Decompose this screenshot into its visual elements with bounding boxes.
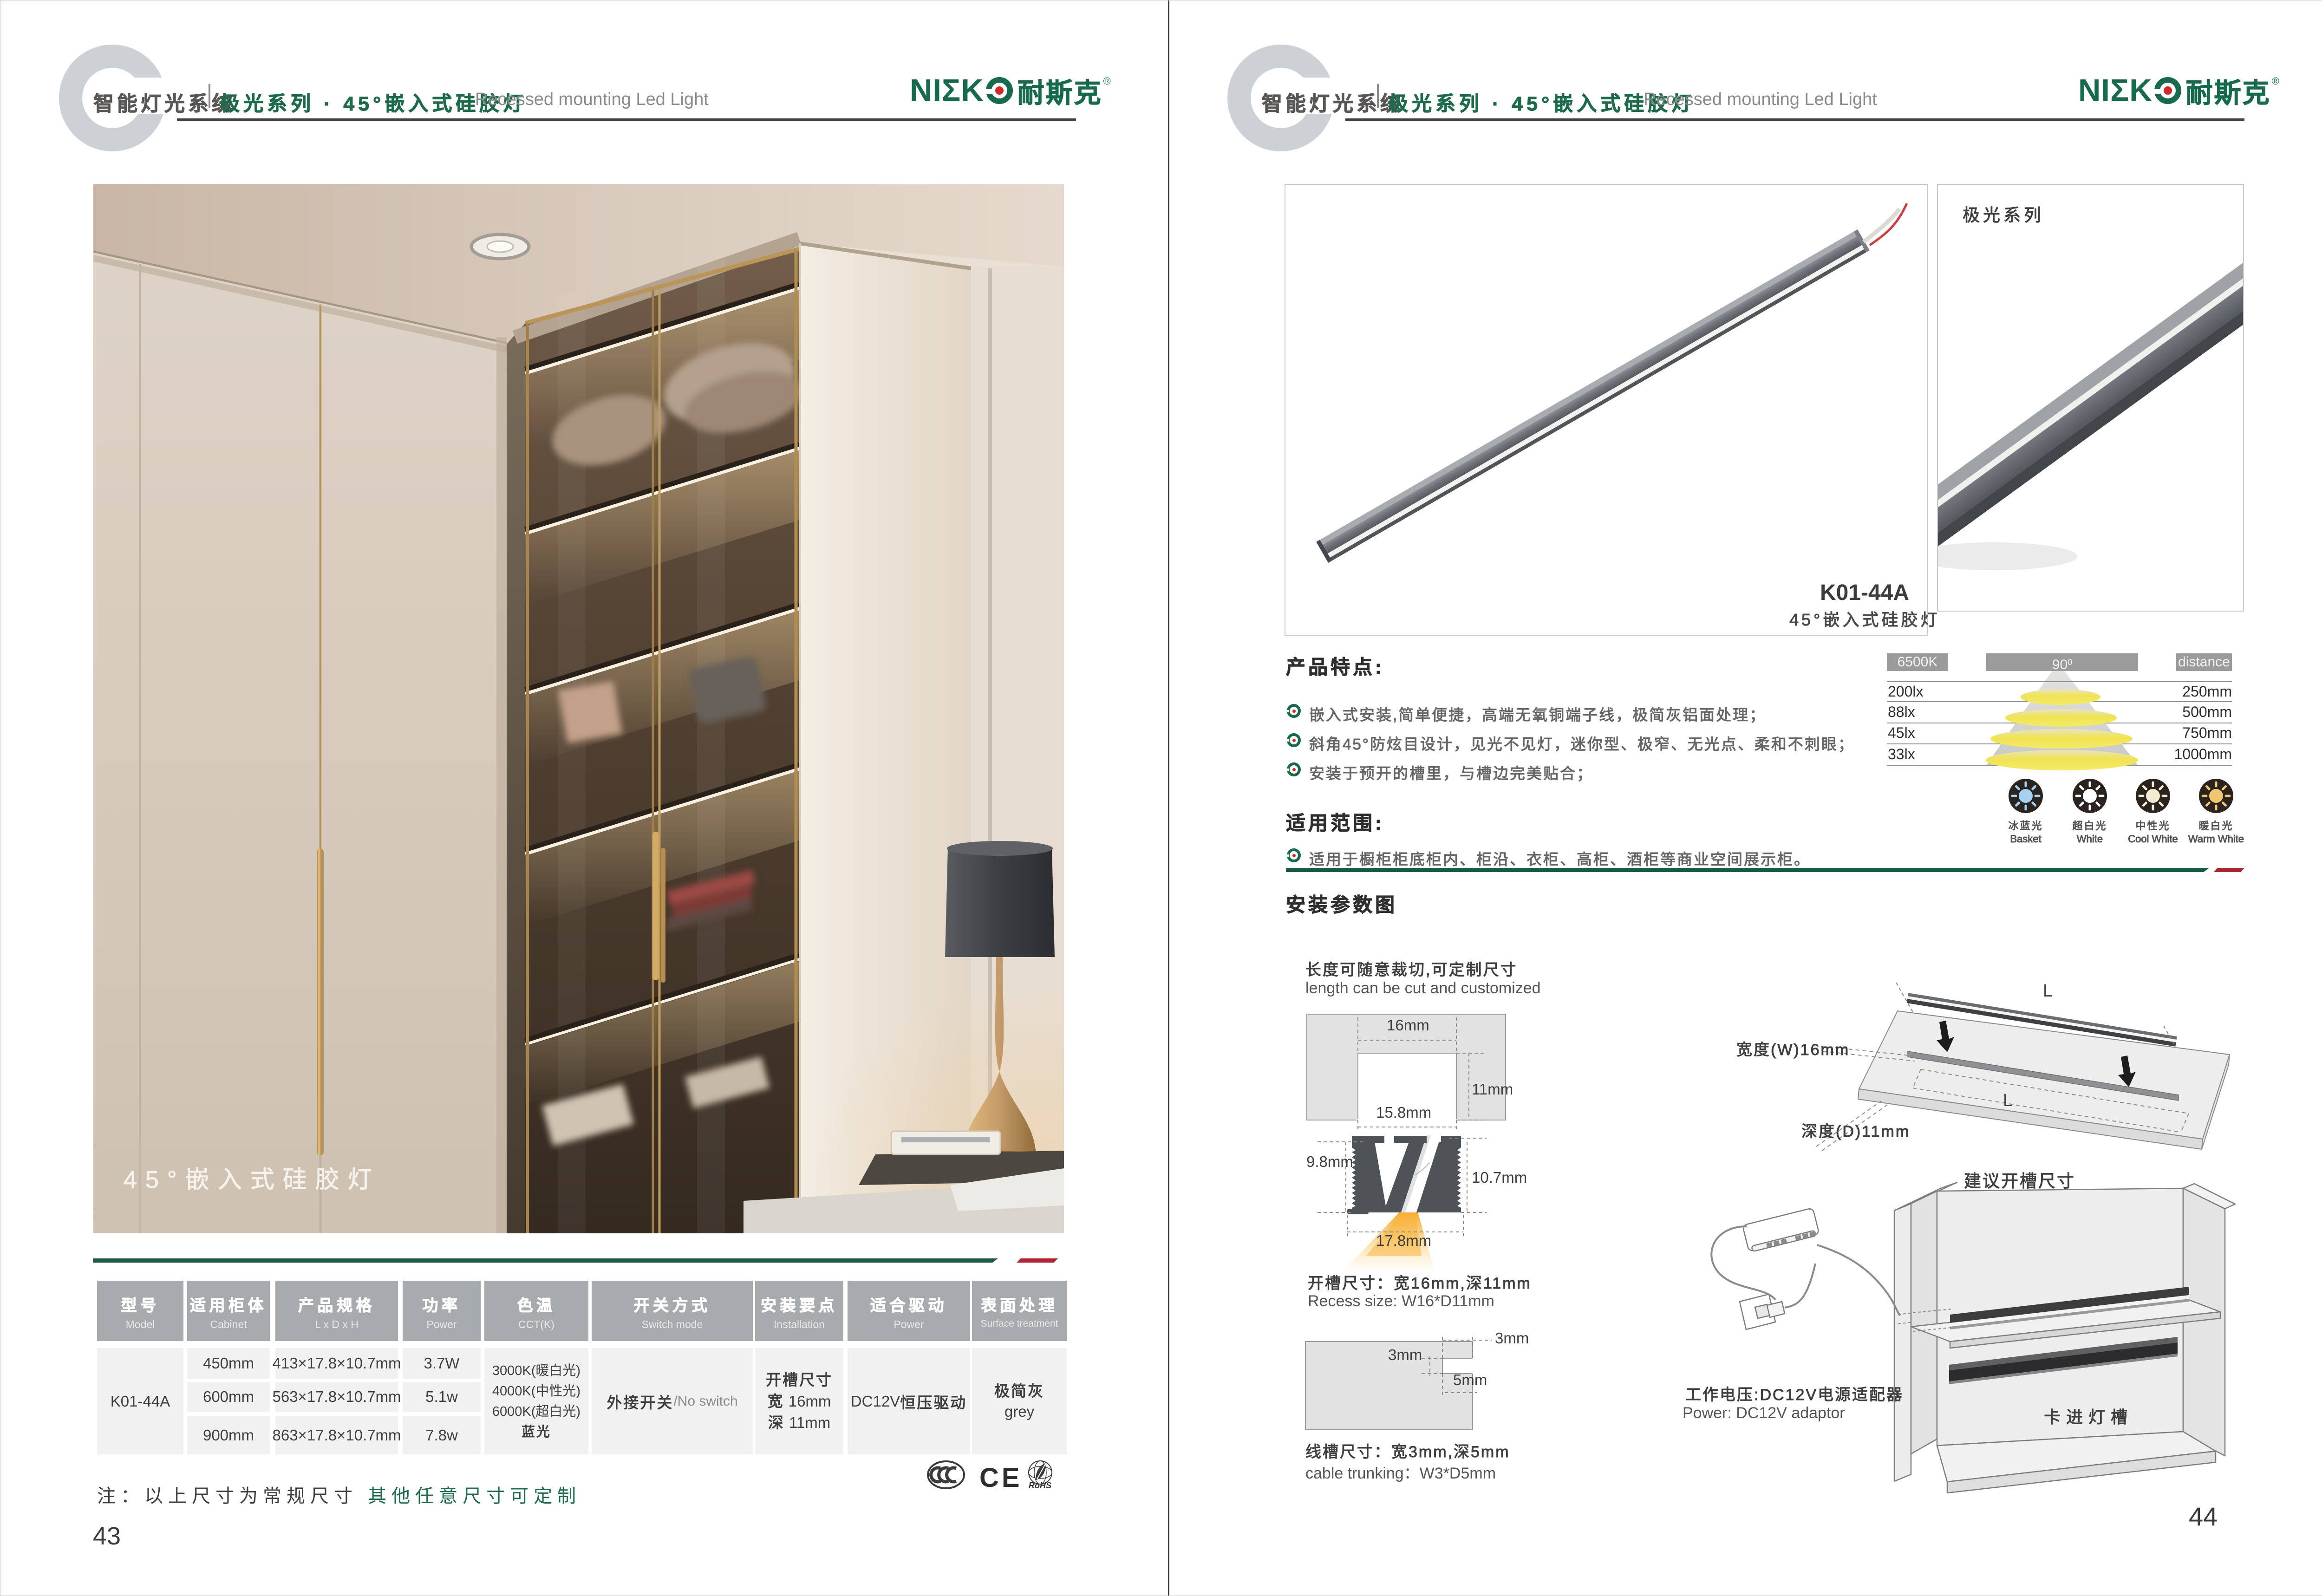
svg-text:RoHS: RoHS [1029,1481,1051,1490]
